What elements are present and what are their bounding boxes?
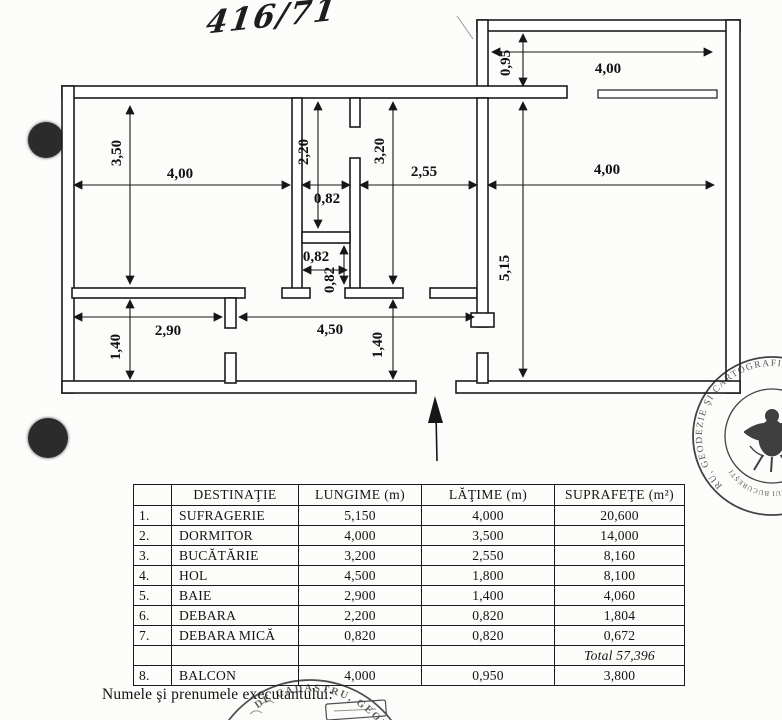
table-cell: 0,820 — [422, 626, 555, 646]
stamp-eagle-emblem — [744, 410, 782, 473]
table-cell: 8. — [134, 666, 172, 686]
table-cell: 0,820 — [422, 606, 555, 626]
table-cell: 0,820 — [299, 626, 422, 646]
table-cell: 1,804 — [555, 606, 685, 626]
dim-baie-height: 1,40 — [108, 334, 124, 360]
table-cell: DEBARA — [172, 606, 299, 626]
table-cell: 8,160 — [555, 546, 685, 566]
round-stamp-right: RU, GEODEZIE ŞI CARTOGRAFIE ✶ OFICIUL DE… — [676, 350, 782, 522]
wall-hol-top-b — [430, 288, 477, 298]
table-cell: 2. — [134, 526, 172, 546]
table-cell — [134, 646, 172, 666]
dim-sufragerie-height: 5,15 — [497, 255, 513, 281]
wall-baie-jamb-bottom — [225, 353, 236, 383]
table-cell: 0,672 — [555, 626, 685, 646]
wall-sufragerie-left — [477, 98, 488, 327]
table-cell — [299, 646, 422, 666]
wall-right-exterior — [726, 20, 740, 393]
table-cell: 0,950 — [422, 666, 555, 686]
table-cell: 3. — [134, 546, 172, 566]
dim-dormitor-height: 3,50 — [109, 140, 125, 166]
interior-walls — [72, 98, 494, 383]
table-row: 1.SUFRAGERIE5,1504,00020,600 — [134, 506, 685, 526]
wall-debara-right-stub — [350, 98, 360, 127]
table-cell: BUCĂTĂRIE — [172, 546, 299, 566]
table-cell: 5. — [134, 586, 172, 606]
dim-baie-width: 2,90 — [155, 323, 181, 339]
table-row: 6.DEBARA2,2000,8201,804 — [134, 606, 685, 626]
table-cell — [172, 646, 299, 666]
rooms-table: DESTINAŢIE LUNGIME (m) LĂŢIME (m) SUPRAF… — [133, 484, 685, 686]
table-cell: 4. — [134, 566, 172, 586]
scan-crease-mark — [457, 16, 473, 39]
wall-debara-left — [292, 98, 302, 290]
table-cell: 4,060 — [555, 586, 685, 606]
table-cell: DEBARA MICĂ — [172, 626, 299, 646]
table-cell — [422, 646, 555, 666]
dim-sufragerie-width: 4,00 — [594, 162, 620, 178]
table-cell: 1. — [134, 506, 172, 526]
dim-balcon-depth: 0,95 — [498, 50, 514, 76]
scanned-page: 416/71 — [0, 0, 782, 720]
table-cell: 3,500 — [422, 526, 555, 546]
wall-sufragerie-left-foot — [471, 313, 494, 327]
table-cell: 4,000 — [299, 526, 422, 546]
table-cell: 2,550 — [422, 546, 555, 566]
table-cell: 20,600 — [555, 506, 685, 526]
table-cell: 7. — [134, 626, 172, 646]
header-suprafete: SUPRAFEŢE (m²) — [555, 485, 685, 506]
dim-balcon-width: 4,00 — [595, 61, 621, 77]
wall-debara-divider — [302, 232, 350, 243]
header-destinatie: DESTINAŢIE — [172, 485, 299, 506]
table-cell: 2,900 — [299, 586, 422, 606]
rooms-table-body: 1.SUFRAGERIE5,1504,00020,6002.DORMITOR4,… — [134, 506, 685, 686]
table-row: 5.BAIE2,9001,4004,060 — [134, 586, 685, 606]
table-cell: 2,200 — [299, 606, 422, 626]
entrance-arrow — [428, 396, 443, 461]
table-cell: SUFRAGERIE — [172, 506, 299, 526]
table-cell: 1,800 — [422, 566, 555, 586]
table-row: 4.HOL4,5001,8008,100 — [134, 566, 685, 586]
table-cell: Total 57,396 — [555, 646, 685, 666]
header-latime: LĂŢIME (m) — [422, 485, 555, 506]
dim-hol-width: 4,50 — [317, 322, 343, 338]
wall-left-exterior — [62, 86, 74, 393]
table-cell: BAIE — [172, 586, 299, 606]
table-cell: 3,200 — [299, 546, 422, 566]
table-row: Total 57,396 — [134, 646, 685, 666]
dim-debara-width: 0,82 — [314, 191, 340, 207]
table-cell: 4,500 — [299, 566, 422, 586]
table-cell: 8,100 — [555, 566, 685, 586]
header-num — [134, 485, 172, 506]
dim-hol-height: 1,40 — [370, 332, 386, 358]
table-cell: 6. — [134, 606, 172, 626]
table-row: 2.DORMITOR4,0003,50014,000 — [134, 526, 685, 546]
dim-bucatarie-width: 2,55 — [411, 164, 437, 180]
table-cell: 1,400 — [422, 586, 555, 606]
wall-dormitor-bottom — [72, 288, 245, 298]
table-cell: HOL — [172, 566, 299, 586]
table-cell: 3,800 — [555, 666, 685, 686]
floor-plan: 3,50 4,00 2,20 0,82 3,20 2,55 0,95 4,00 … — [0, 0, 782, 478]
wall-hol-top-a — [345, 288, 403, 298]
table-header-row: DESTINAŢIE LUNGIME (m) LĂŢIME (m) SUPRAF… — [134, 485, 685, 506]
wall-balcony-top — [477, 20, 740, 31]
dim-debara-mica-width: 0,82 — [303, 249, 329, 265]
header-lungime: LUNGIME (m) — [299, 485, 422, 506]
wall-bottom-left — [62, 381, 416, 393]
round-stamp-bottom: DE CADASTRU, GEODEZ — [222, 670, 412, 720]
wall-balcony-parapet — [598, 90, 717, 98]
dim-bucatarie-height: 3,20 — [372, 138, 388, 164]
table-row: 7.DEBARA MICĂ0,8200,8200,672 — [134, 626, 685, 646]
dim-dormitor-width: 4,00 — [167, 166, 193, 182]
wall-baie-jamb-top — [225, 298, 236, 328]
dim-debara-height: 2,20 — [296, 139, 312, 165]
wall-top-main — [62, 86, 567, 98]
table-cell: DORMITOR — [172, 526, 299, 546]
wall-debara-right — [350, 158, 360, 290]
dim-debara-mica-height: 0,82 — [322, 267, 338, 293]
wall-sufragerie-left-stub — [477, 353, 488, 383]
table-cell: 5,150 — [299, 506, 422, 526]
wall-debara-left-foot — [282, 288, 310, 298]
table-cell: 4,000 — [422, 506, 555, 526]
table-cell: 14,000 — [555, 526, 685, 546]
table-row: 3.BUCĂTĂRIE3,2002,5508,160 — [134, 546, 685, 566]
